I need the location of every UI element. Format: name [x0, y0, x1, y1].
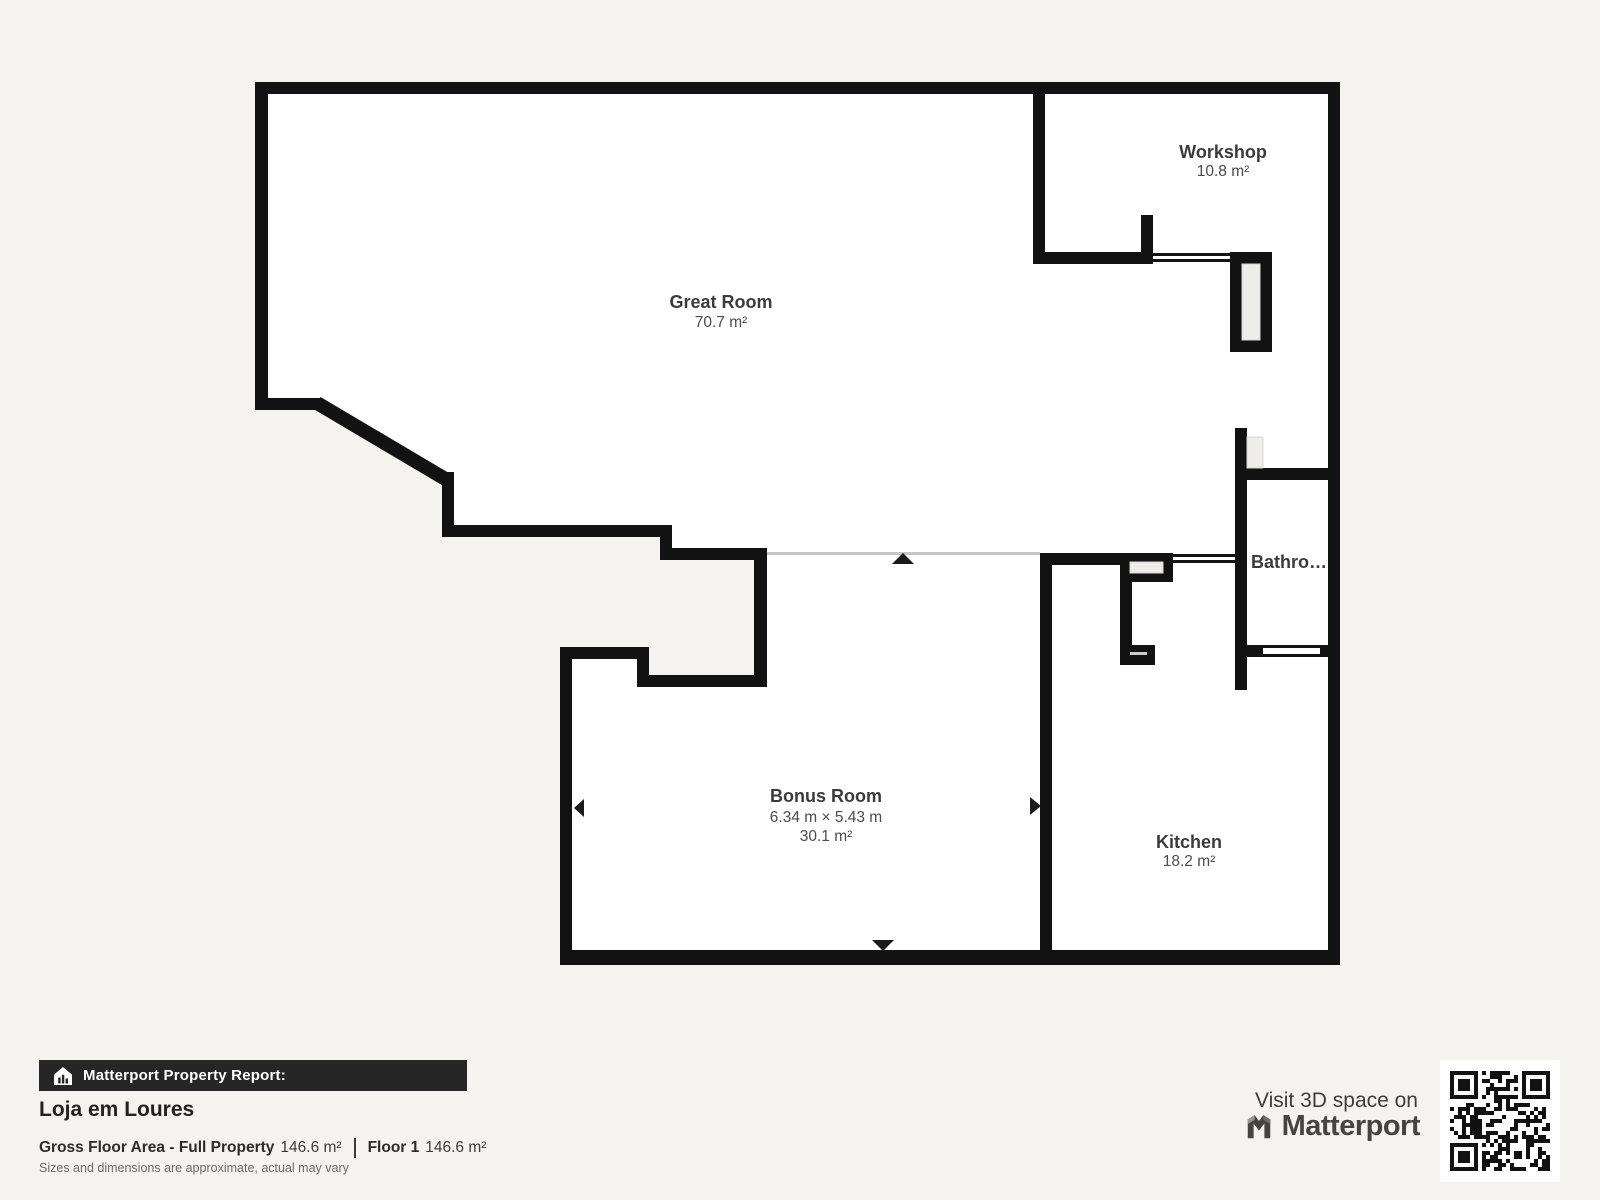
bathroom-label: Bathro…: [1251, 552, 1327, 572]
bonus-room-area: 30.1 m²: [800, 828, 853, 845]
bonus-room-dimensions: 6.34 m × 5.43 m: [770, 809, 882, 826]
wall-top: [255, 82, 1340, 94]
property-title: Loja em Loures: [39, 1098, 194, 1122]
gross-area-value: 146.6 m²: [280, 1139, 341, 1157]
wall-bonus-top: [560, 647, 649, 659]
wall-left-notch: [255, 398, 322, 410]
wall-left: [255, 82, 268, 410]
workshop-door-line: [1153, 253, 1230, 256]
wall-step2-horiz: [660, 548, 767, 560]
workshop-label: Workshop: [1179, 142, 1267, 162]
wall-workshop-left: [1033, 88, 1045, 264]
workshop-area: 10.8 m²: [1197, 163, 1250, 180]
kitchen-door-line: [1173, 554, 1235, 557]
kitchen-door-clear: [1173, 551, 1235, 567]
qr-code-pattern: [1450, 1071, 1550, 1171]
kitchen-label: Kitchen: [1156, 832, 1222, 852]
floor-value: 146.6 m²: [425, 1139, 486, 1157]
great-room-label: Great Room: [669, 292, 772, 312]
property-report-page: Great Room 70.7 m² Workshop 10.8 m² Bath…: [0, 0, 1600, 1200]
shaft-upper: [1242, 264, 1260, 340]
qr-finder-top-right: [1522, 1071, 1550, 1099]
kitchen-entry-inset: [1130, 562, 1163, 573]
wall-kitchen-left: [1040, 553, 1052, 953]
wall-notch-right: [754, 548, 767, 687]
qr-finder-top-left: [1450, 1071, 1478, 1099]
disclaimer-text: Sizes and dimensions are approximate, ac…: [39, 1161, 349, 1175]
workshop-door-clear: [1153, 250, 1230, 266]
shaft-lower: [1247, 437, 1263, 468]
wall-workshop-door-jamb: [1141, 215, 1153, 264]
house-chart-icon: [53, 1066, 73, 1086]
kitchen-area: 18.2 m²: [1163, 853, 1216, 870]
wall-right: [1328, 82, 1340, 965]
report-banner: Matterport Property Report:: [39, 1060, 467, 1091]
wall-shaft-right: [1260, 252, 1272, 352]
wall-shaft-bottom: [1230, 340, 1272, 352]
floor-plan: Great Room 70.7 m² Workshop 10.8 m² Bath…: [0, 0, 1600, 1200]
wall-alcove-bottom: [637, 675, 767, 687]
wall-bottom: [560, 950, 1340, 965]
qr-code: [1440, 1060, 1560, 1182]
bonus-room-label: Bonus Room: [770, 786, 882, 806]
wall-bonus-left: [560, 647, 572, 965]
bathroom-door-slit: [1263, 648, 1320, 654]
matterport-wordmark: Matterport: [1282, 1110, 1420, 1143]
banner-text: Matterport Property Report:: [83, 1067, 286, 1084]
matterport-logo-icon: [1244, 1112, 1274, 1142]
wall-bathroom-top: [1247, 468, 1340, 480]
wall-greatroom-bottom: [442, 525, 672, 537]
gross-area-label: Gross Floor Area - Full Property: [39, 1139, 274, 1157]
wall-bathroom-left: [1235, 428, 1247, 690]
floor-label: Floor 1: [368, 1139, 420, 1157]
great-room-area: 70.7 m²: [695, 314, 748, 331]
kitchen-entry-dash: [1130, 652, 1147, 655]
qr-finder-bottom-left: [1450, 1143, 1478, 1171]
workshop-door-line: [1153, 259, 1230, 262]
kitchen-door-line: [1173, 560, 1235, 563]
matterport-brand: Matterport: [1244, 1110, 1420, 1143]
area-stats: Gross Floor Area - Full Property 146.6 m…: [39, 1138, 486, 1158]
wall-workshop-bottom: [1033, 252, 1153, 264]
wall-shaft-left: [1230, 252, 1242, 352]
stats-divider: [354, 1138, 356, 1158]
